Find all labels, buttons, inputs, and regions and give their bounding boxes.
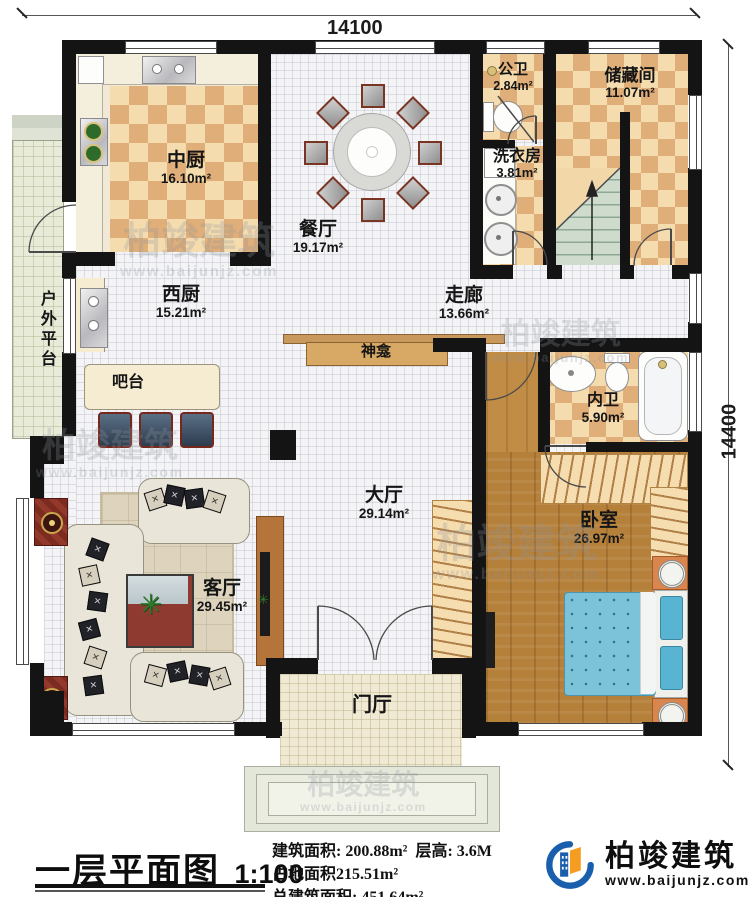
floor-plan: 14100 14400 户外平台 中厨 16.10m² 餐厅 19.17m² (0, 0, 750, 897)
window-icon (689, 273, 702, 324)
window-icon (689, 352, 702, 432)
pillow-icon (660, 646, 683, 690)
wall-segment (620, 265, 634, 279)
window-icon (315, 41, 435, 54)
wall-segment (462, 674, 476, 738)
lazy-susan (366, 146, 378, 158)
bar-stool-icon (98, 412, 132, 448)
wall-segment (30, 663, 44, 691)
logo-website: www.baijunjz.com (605, 872, 750, 888)
wall-segment (470, 265, 513, 279)
wall-segment (540, 338, 688, 352)
lamp-icon (658, 560, 686, 588)
window-icon (72, 723, 235, 736)
wall-segment (538, 352, 550, 442)
cushion: ✕ (188, 664, 210, 686)
dimension-line-top (22, 15, 696, 16)
wall-segment (30, 722, 72, 736)
wall-segment (688, 168, 702, 273)
gold-medallion-icon (41, 512, 63, 534)
stat-floor-height: 层高: 3.6M (415, 843, 491, 860)
wall-segment (547, 265, 562, 279)
wall-segment (62, 352, 76, 436)
stat-total-area: 总建筑面积: 451.64m² (272, 886, 492, 897)
wall-segment (30, 464, 44, 498)
toilet-icon (493, 101, 523, 133)
wall-segment (688, 322, 702, 352)
stat-build-area: 建筑面积: 200.88m² (272, 843, 407, 860)
label-zoulang: 走廊 13.66m² (439, 285, 489, 321)
label-neiwei: 内卫 5.90m² (582, 392, 625, 425)
label-shenkan: 神龛 (361, 344, 391, 361)
label-xichu: 西厨 15.21m² (156, 284, 206, 320)
wall-segment (62, 252, 115, 266)
bar-stool-icon (180, 412, 214, 448)
wall-segment (30, 691, 64, 722)
faucet-icon (658, 360, 667, 369)
burner-icon (84, 144, 103, 163)
porch-step (268, 782, 476, 816)
window-icon (486, 41, 545, 54)
bedroom-entry-floor (486, 352, 538, 454)
outdoor-platform (12, 115, 64, 439)
wall-pillar (270, 430, 296, 460)
cushion: ✕ (83, 675, 104, 696)
wall-segment (543, 54, 556, 265)
pillow-icon (660, 596, 683, 640)
wall-segment (258, 54, 271, 252)
chair-icon (304, 141, 328, 165)
menting-floor (280, 674, 462, 766)
plan-stats: 建筑面积: 200.88m² 层高: 3.6M 占地面积215.51m² 总建筑… (272, 840, 492, 897)
hall-wardrobe (432, 500, 474, 662)
dimension-tick (689, 7, 700, 18)
wall-segment (470, 54, 483, 265)
stat-land-area: 占地面积215.51m² (272, 863, 492, 886)
sink-basin (88, 296, 99, 307)
label-woshi: 卧室 26.97m² (574, 510, 624, 546)
wall-segment (620, 112, 630, 265)
chair-icon (361, 198, 385, 222)
window-icon (16, 498, 29, 665)
plant-icon: ✳ (139, 588, 162, 621)
kitchen-counter-left (76, 84, 103, 252)
bar-counter (84, 364, 220, 410)
dimension-tick (16, 7, 27, 18)
cushion: ✕ (87, 591, 108, 612)
label-xiyifang: 洗衣房 3.81m² (493, 148, 541, 180)
window-icon (518, 723, 644, 736)
platform-step (12, 115, 62, 129)
label-keting: 客厅 29.45m² (197, 578, 247, 614)
wall-segment (266, 658, 318, 674)
bed-sheet-fold (640, 592, 656, 694)
company-logo: 柏竣建筑 www.baijunjz.com (543, 838, 750, 892)
wall-segment (688, 430, 702, 736)
chair-icon (418, 141, 442, 165)
sofa (130, 652, 244, 722)
wall-segment (432, 658, 476, 674)
label-chucangjian: 储藏间 11.07m² (605, 66, 656, 100)
wall-segment (230, 252, 271, 266)
wall-segment (538, 442, 550, 452)
sink-basin (174, 64, 184, 74)
label-zhongchu: 中厨 16.10m² (161, 150, 211, 186)
plant-icon: ✳ (258, 592, 269, 608)
window-icon (689, 95, 702, 170)
label-gongwei: 公卫 2.84m² (493, 62, 533, 93)
label-menting: 门厅 (352, 694, 392, 716)
wardrobe (650, 487, 690, 561)
drain (496, 196, 501, 201)
logo-company-name: 柏竣建筑 (605, 842, 750, 872)
dimension-right-label: 14400 (719, 402, 742, 462)
title-underline (35, 890, 265, 892)
window-icon (588, 41, 660, 54)
wall-segment (433, 338, 486, 352)
wall-segment (62, 40, 76, 202)
window-icon (125, 41, 217, 54)
platform-step (12, 128, 62, 141)
wash-basin-icon (485, 184, 517, 216)
logo-icon (543, 838, 597, 892)
kitchen-sink-icon (142, 56, 196, 84)
label-batai: 吧台 (112, 374, 144, 392)
bar-stool-icon (139, 412, 173, 448)
chair-icon (361, 84, 385, 108)
cushion: ✕ (163, 484, 186, 507)
wall-segment (30, 436, 64, 464)
dimension-top-label: 14100 (327, 17, 383, 40)
sink-basin (88, 320, 99, 331)
burner-icon (84, 122, 103, 141)
drain (496, 235, 501, 240)
sink-basin (152, 64, 162, 74)
label-canting: 餐厅 19.17m² (293, 219, 343, 255)
wall-segment (586, 442, 688, 452)
wall-segment (266, 674, 280, 738)
cushion: ✕ (78, 564, 101, 587)
bedroom-tv-icon (486, 612, 495, 668)
toilet-icon (605, 362, 629, 392)
wash-basin-icon (484, 222, 518, 256)
cushion: ✕ (166, 660, 189, 683)
title-underline (35, 884, 265, 888)
wall-segment (470, 140, 515, 148)
window-icon (63, 278, 76, 354)
fridge (78, 56, 104, 84)
wall-segment (688, 40, 702, 95)
label-dating: 大厅 29.14m² (359, 485, 409, 521)
label-huwaipingtai: 户外平台 (37, 290, 55, 370)
drain (568, 370, 574, 376)
